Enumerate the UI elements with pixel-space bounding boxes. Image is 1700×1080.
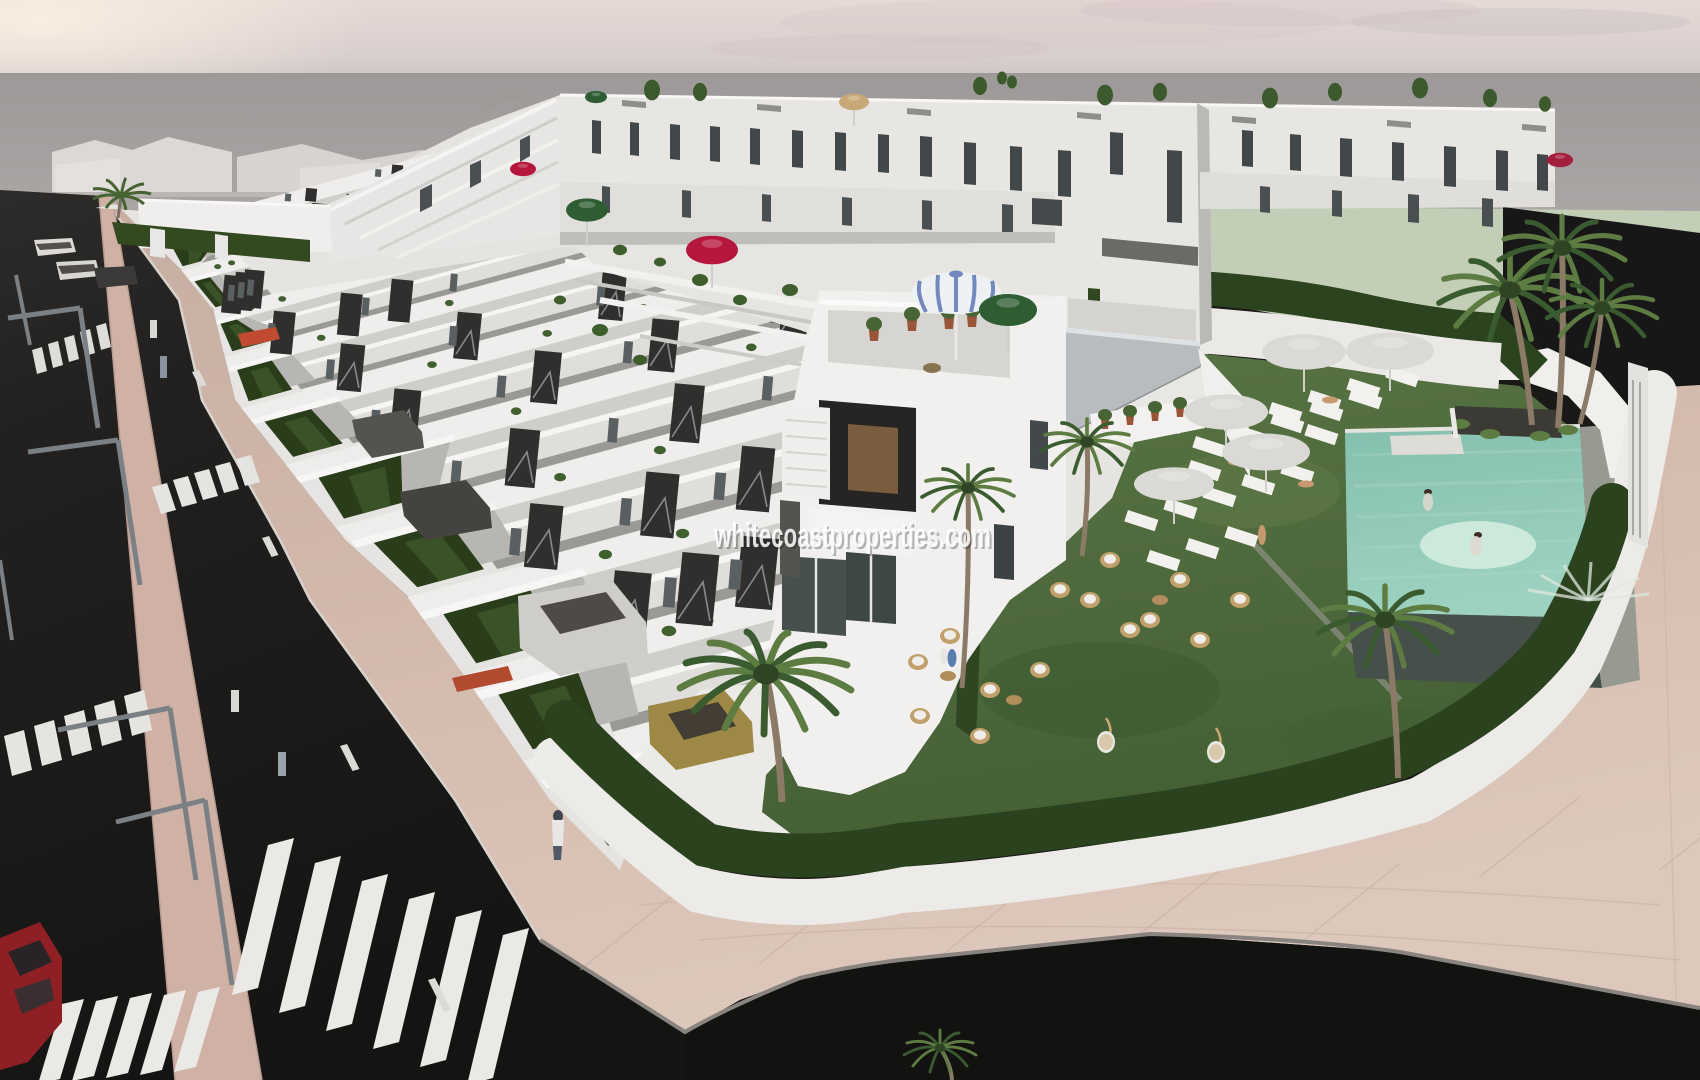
svg-text:whitecoastproperties.com: whitecoastproperties.com — [713, 517, 991, 555]
